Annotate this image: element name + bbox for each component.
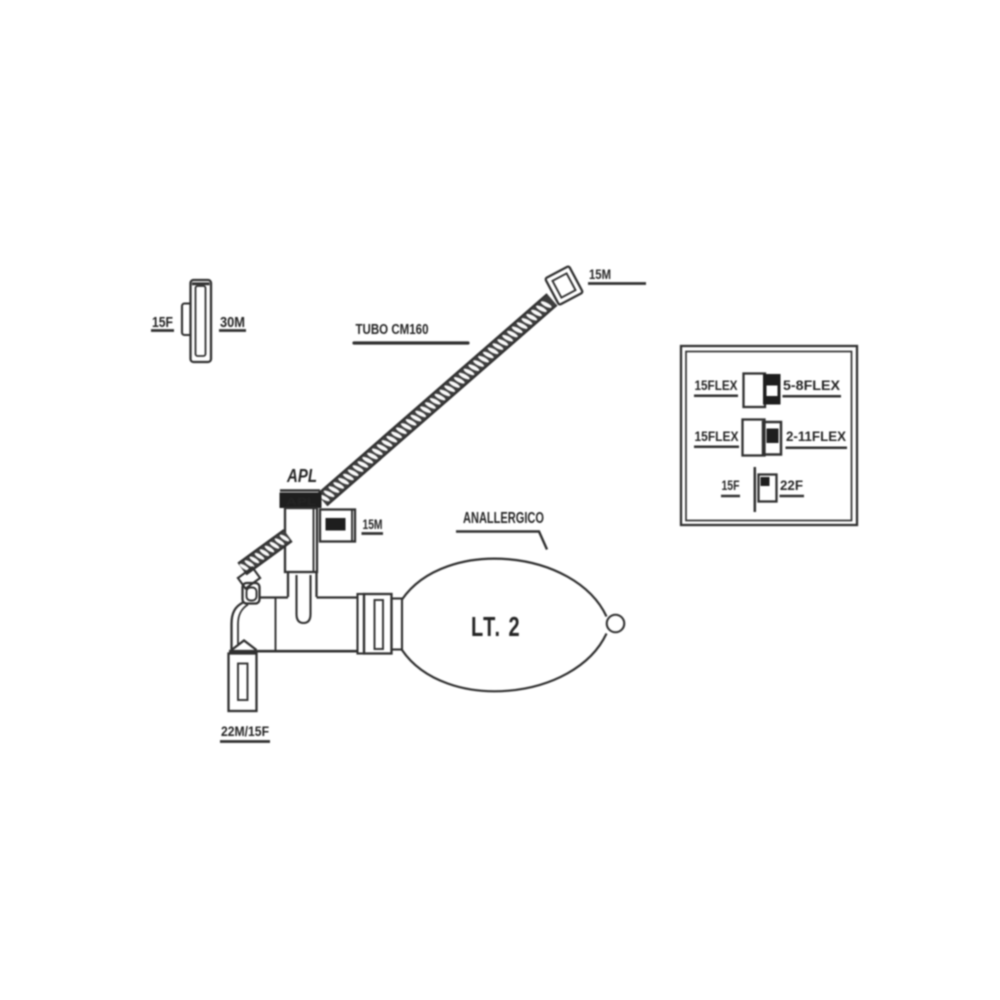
svg-text:TUBO CM160: TUBO CM160 — [356, 322, 429, 338]
svg-text:15FLEX: 15FLEX — [695, 378, 738, 393]
svg-text:22F: 22F — [780, 478, 803, 493]
svg-text:15F: 15F — [152, 314, 173, 331]
svg-text:LT. 2: LT. 2 — [471, 611, 521, 642]
svg-text:15F: 15F — [722, 478, 740, 493]
svg-text:15FLEX: 15FLEX — [695, 429, 739, 444]
svg-text:ANALLERGICO: ANALLERGICO — [463, 510, 544, 527]
svg-text:5-8FLEX: 5-8FLEX — [783, 378, 840, 393]
svg-text:15M: 15M — [363, 516, 383, 532]
svg-text:15M: 15M — [589, 266, 611, 282]
svg-text:APL: APL — [286, 496, 317, 508]
svg-text:30M: 30M — [220, 314, 245, 331]
svg-text:22M/15F: 22M/15F — [221, 724, 269, 739]
svg-text:APL: APL — [286, 466, 317, 486]
svg-text:2-11FLEX: 2-11FLEX — [786, 429, 846, 444]
